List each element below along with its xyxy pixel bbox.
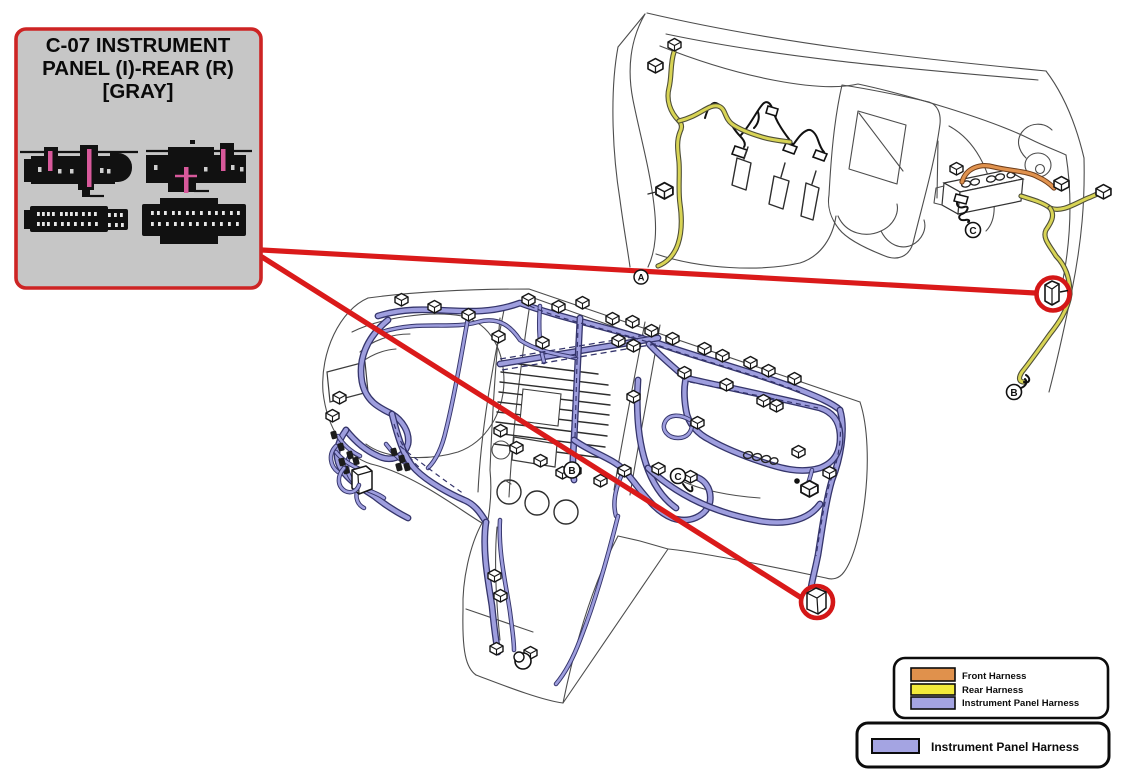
- svg-text:C: C: [969, 226, 976, 237]
- svg-text:[GRAY]: [GRAY]: [103, 80, 174, 103]
- svg-text:B: B: [568, 466, 575, 477]
- svg-text:C-07 INSTRUMENT: C-07 INSTRUMENT: [46, 34, 231, 57]
- svg-text:A: A: [638, 273, 645, 284]
- svg-text:Front Harness: Front Harness: [962, 671, 1026, 682]
- svg-text:Instrument Panel Harness: Instrument Panel Harness: [931, 740, 1079, 754]
- svg-text:Rear Harness: Rear Harness: [962, 685, 1023, 696]
- svg-text:C: C: [674, 472, 681, 483]
- svg-text:B: B: [1010, 388, 1017, 399]
- svg-text:Instrument Panel Harness: Instrument Panel Harness: [962, 698, 1079, 709]
- svg-text:PANEL (I)-REAR (R): PANEL (I)-REAR (R): [42, 57, 234, 80]
